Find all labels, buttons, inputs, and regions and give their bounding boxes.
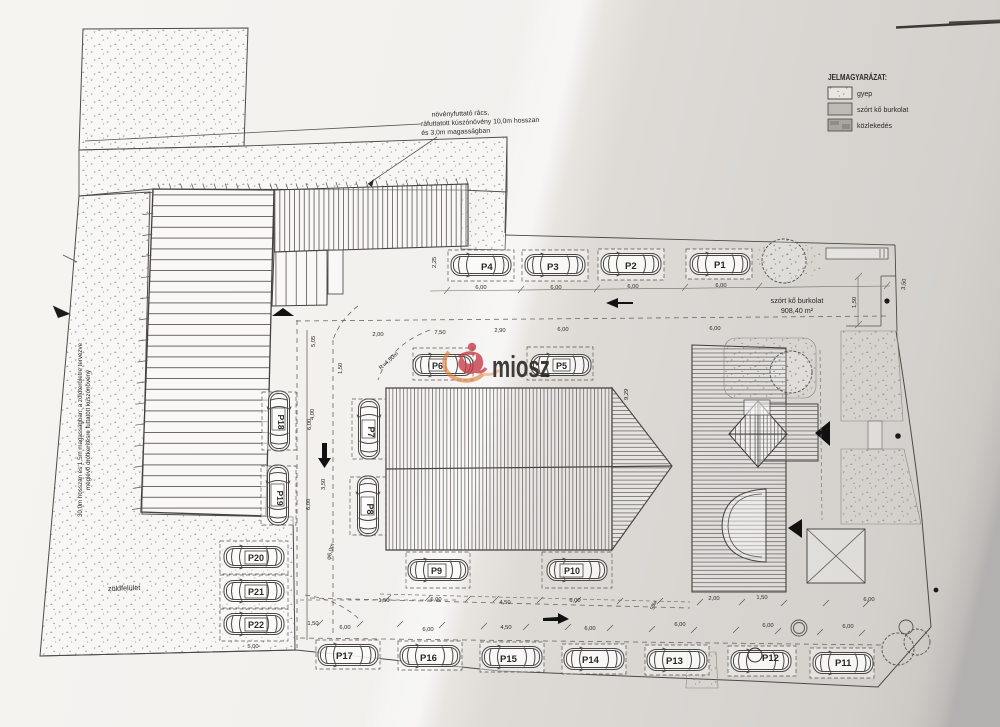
svg-text:gyep: gyep <box>857 91 872 98</box>
svg-text:6,00: 6,00 <box>306 499 312 510</box>
svg-text:4,00: 4,00 <box>310 409 316 420</box>
svg-text:6,00: 6,00 <box>475 285 486 291</box>
svg-text:P3: P3 <box>547 262 559 273</box>
svg-text:P7: P7 <box>366 426 376 437</box>
svg-text:P11: P11 <box>835 658 852 669</box>
svg-text:6,00: 6,00 <box>674 622 685 628</box>
svg-text:2,00: 2,00 <box>708 596 719 602</box>
svg-text:7,50: 7,50 <box>434 330 445 336</box>
svg-text:3,50: 3,50 <box>901 278 908 290</box>
svg-text:3,50: 3,50 <box>321 479 327 490</box>
svg-text:miosz: miosz <box>492 349 550 384</box>
svg-text:P10: P10 <box>564 566 580 576</box>
svg-text:6,00: 6,00 <box>762 623 773 629</box>
svg-text:30,0m hosszan és 1,5m magasság: 30,0m hosszan és 1,5m magasságban, a zöl… <box>77 342 84 517</box>
svg-text:P12: P12 <box>762 653 779 664</box>
svg-text:6,00: 6,00 <box>430 597 441 603</box>
svg-text:2,25: 2,25 <box>432 257 438 268</box>
svg-text:P15: P15 <box>500 654 518 665</box>
svg-text:P14: P14 <box>582 655 600 666</box>
svg-text:4,50: 4,50 <box>500 625 511 631</box>
svg-text:2,00: 2,00 <box>372 332 383 338</box>
svg-text:P13: P13 <box>666 656 683 667</box>
svg-text:P5: P5 <box>556 361 567 371</box>
svg-text:P22: P22 <box>248 620 264 630</box>
svg-text:meglévő drótkerítésre futtatot: meglévő drótkerítésre futtatott kúszónöv… <box>85 369 92 490</box>
svg-text:JELMAGYARÁZAT:: JELMAGYARÁZAT: <box>828 73 887 82</box>
svg-text:6,00: 6,00 <box>339 625 350 631</box>
svg-text:1,50: 1,50 <box>852 297 858 308</box>
svg-text:P4: P4 <box>481 262 493 273</box>
svg-text:5,00: 5,00 <box>247 644 258 650</box>
svg-text:5,05: 5,05 <box>311 336 317 347</box>
svg-text:6,00: 6,00 <box>557 327 568 333</box>
svg-text:6,00: 6,00 <box>863 597 874 603</box>
svg-text:6,00: 6,00 <box>550 285 561 291</box>
svg-text:1,50: 1,50 <box>378 598 389 604</box>
svg-text:2,90: 2,90 <box>494 328 505 334</box>
svg-text:P16: P16 <box>420 653 437 664</box>
svg-text:6,00: 6,00 <box>422 627 433 633</box>
svg-text:9,29: 9,29 <box>624 389 630 400</box>
svg-text:szórt kő burkolat: szórt kő burkolat <box>771 296 824 305</box>
svg-text:P18: P18 <box>276 414 286 429</box>
svg-text:1,50: 1,50 <box>338 363 344 374</box>
svg-text:közlekedés: közlekedés <box>857 123 893 130</box>
svg-text:szórt kő burkolat: szórt kő burkolat <box>857 107 908 114</box>
svg-text:P9: P9 <box>431 566 442 576</box>
svg-text:P20: P20 <box>248 553 264 563</box>
svg-text:6,00: 6,00 <box>842 624 853 630</box>
svg-text:P19: P19 <box>275 490 285 505</box>
svg-text:P1: P1 <box>714 260 726 271</box>
svg-text:P21: P21 <box>248 587 264 597</box>
svg-text:4,50: 4,50 <box>499 600 510 606</box>
svg-text:P2: P2 <box>625 261 637 272</box>
svg-text:6,00: 6,00 <box>715 283 726 289</box>
svg-text:908,40 m²: 908,40 m² <box>781 306 814 315</box>
svg-text:6,00: 6,00 <box>627 284 638 290</box>
svg-text:1,50: 1,50 <box>307 621 318 627</box>
svg-text:1,50: 1,50 <box>756 595 767 601</box>
svg-text:6,00: 6,00 <box>584 626 595 632</box>
svg-text:P8: P8 <box>365 503 375 514</box>
svg-text:6,00: 6,00 <box>709 326 720 332</box>
svg-text:P6: P6 <box>432 361 443 371</box>
svg-text:zöldfelület: zöldfelület <box>108 583 141 593</box>
svg-text:P17: P17 <box>336 651 353 662</box>
